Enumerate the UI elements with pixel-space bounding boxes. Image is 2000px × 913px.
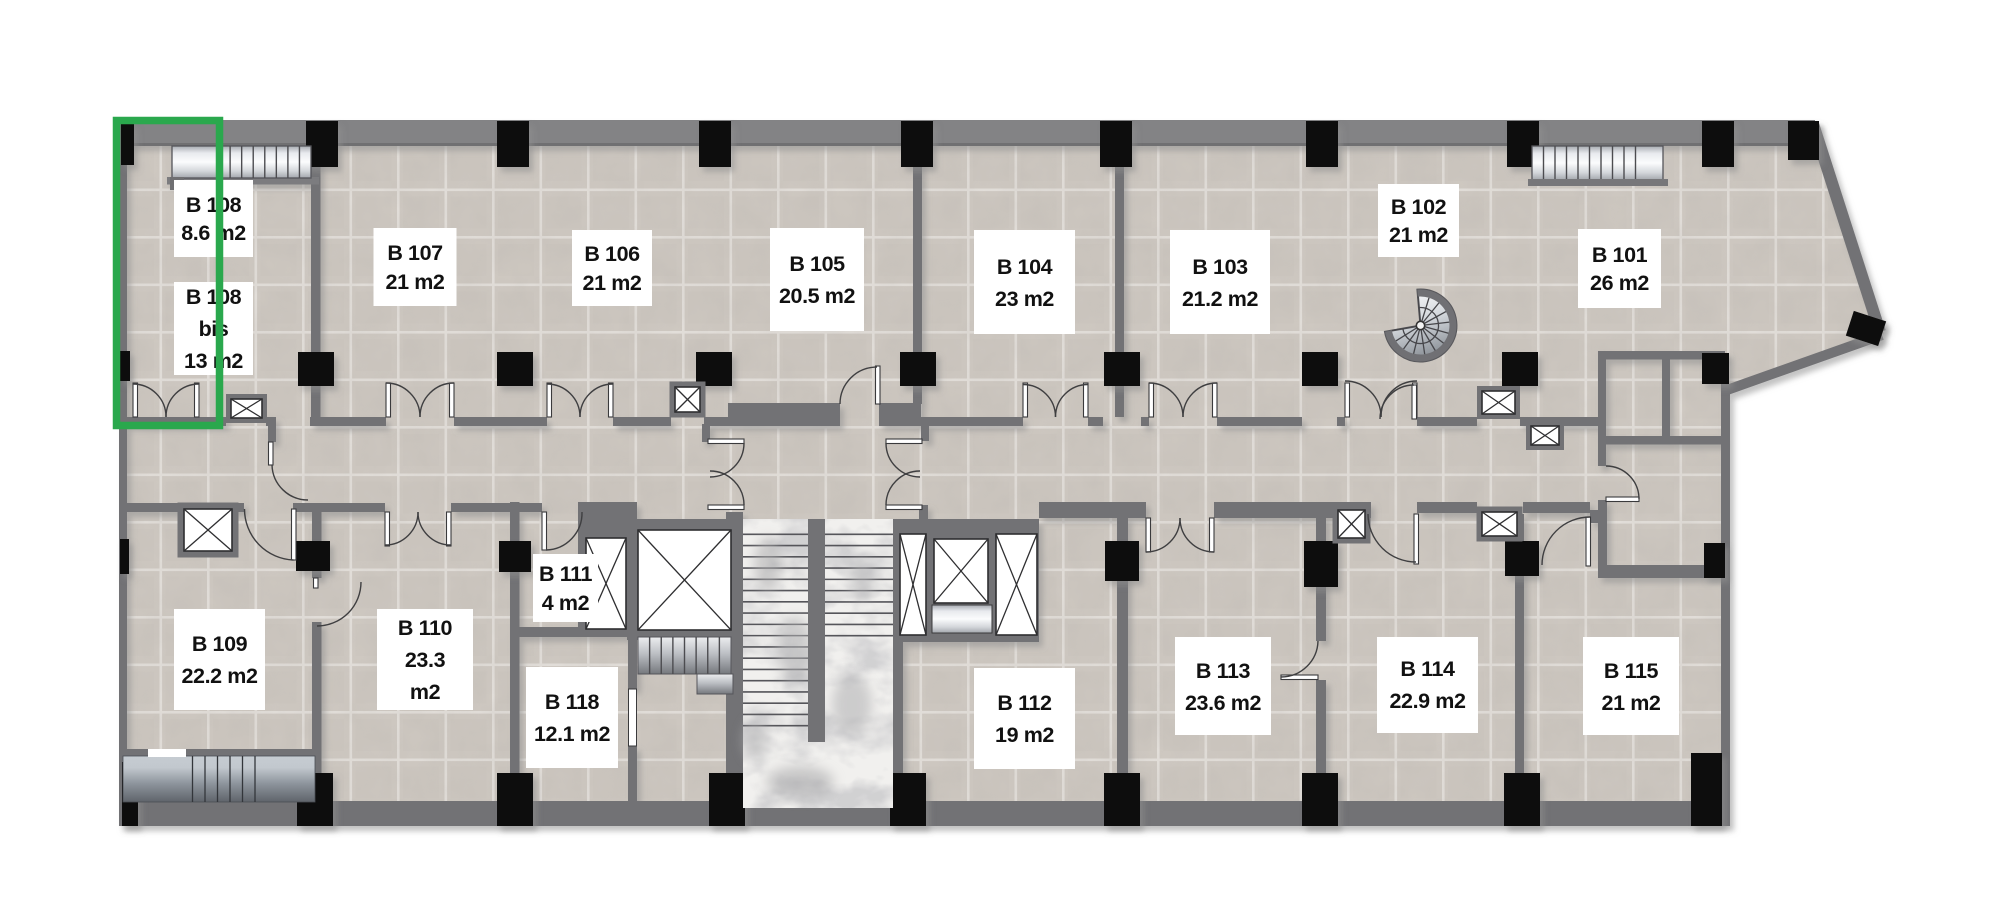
svg-text:B 104: B 104 [997, 255, 1053, 279]
svg-text:19 m2: 19 m2 [995, 723, 1054, 747]
svg-text:B 106: B 106 [584, 242, 640, 266]
svg-text:21 m2: 21 m2 [1389, 223, 1448, 247]
svg-text:B 103: B 103 [1192, 255, 1248, 279]
svg-text:21 m2: 21 m2 [583, 271, 642, 295]
svg-text:B 105: B 105 [789, 252, 845, 276]
svg-text:8.6 m2: 8.6 m2 [181, 221, 246, 245]
svg-text:B 113: B 113 [1196, 659, 1251, 683]
svg-text:B 112: B 112 [997, 691, 1052, 715]
svg-text:B 102: B 102 [1391, 195, 1447, 219]
svg-text:21 m2: 21 m2 [386, 270, 445, 294]
svg-text:B 101: B 101 [1592, 243, 1648, 267]
svg-text:B 108: B 108 [186, 285, 242, 309]
svg-text:12.1 m2: 12.1 m2 [534, 722, 611, 746]
svg-text:20.5 m2: 20.5 m2 [779, 284, 856, 308]
svg-text:13 m2: 13 m2 [184, 349, 243, 373]
svg-text:4 m2: 4 m2 [542, 591, 590, 615]
svg-text:22.2 m2: 22.2 m2 [181, 664, 258, 688]
svg-text:B 108: B 108 [186, 193, 242, 217]
svg-text:22.9 m2: 22.9 m2 [1389, 689, 1466, 713]
svg-text:26 m2: 26 m2 [1590, 271, 1649, 295]
svg-text:B 115: B 115 [1604, 659, 1659, 683]
svg-text:23 m2: 23 m2 [995, 287, 1054, 311]
svg-text:21 m2: 21 m2 [1602, 691, 1661, 715]
svg-text:m2: m2 [410, 680, 441, 704]
svg-text:23.3: 23.3 [405, 648, 446, 672]
svg-text:B 110: B 110 [398, 616, 453, 640]
svg-text:B 107: B 107 [387, 241, 443, 265]
svg-text:bis: bis [199, 317, 229, 341]
svg-text:B 109: B 109 [192, 632, 248, 656]
svg-text:B 118: B 118 [545, 690, 600, 714]
svg-text:21.2 m2: 21.2 m2 [1182, 287, 1259, 311]
svg-text:B 111: B 111 [539, 562, 592, 586]
svg-text:23.6 m2: 23.6 m2 [1185, 691, 1262, 715]
svg-text:B 114: B 114 [1400, 657, 1455, 681]
